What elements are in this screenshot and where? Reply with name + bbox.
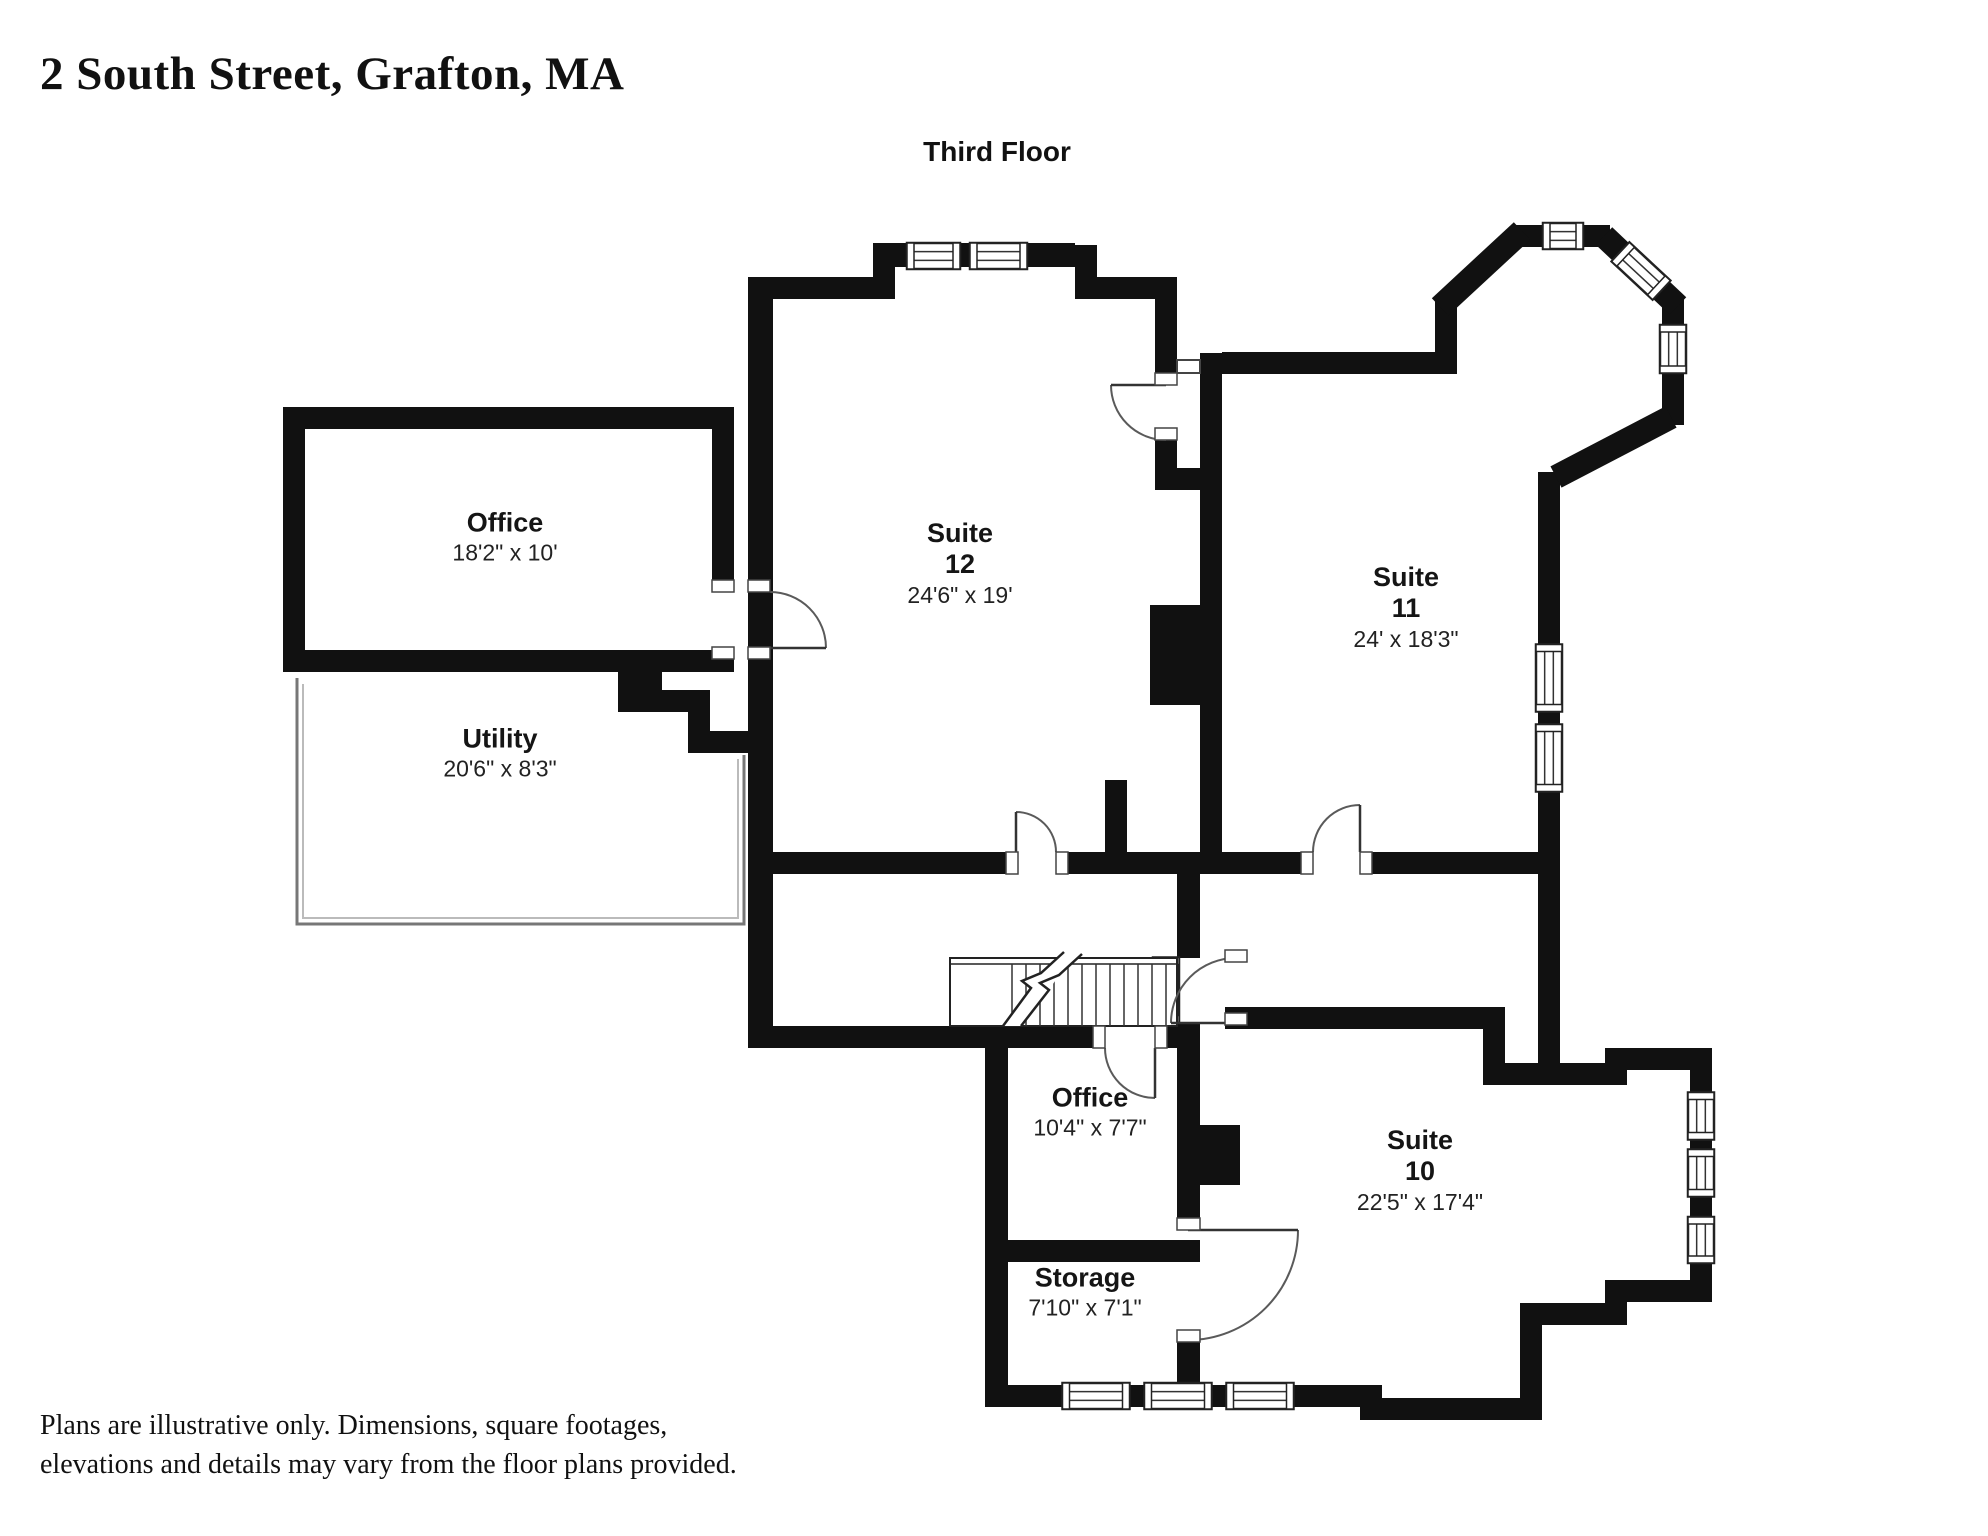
- window-icon: [1688, 1150, 1714, 1197]
- door-icon: [1313, 805, 1360, 852]
- room-number: 11: [1353, 593, 1458, 624]
- disclaimer-line-1: Plans are illustrative only. Dimensions,…: [40, 1406, 737, 1445]
- cased-opening: [1177, 360, 1200, 373]
- room-name: Office: [1033, 1083, 1146, 1114]
- room-dims: 20'6" x 8'3": [443, 756, 556, 783]
- door-jamb: [1056, 852, 1068, 874]
- door-jamb: [1225, 1013, 1247, 1025]
- door-jamb: [1093, 1026, 1105, 1048]
- window-icon: [1536, 725, 1562, 792]
- floor-plan-drawing: [0, 0, 1988, 1536]
- window-icon: [970, 243, 1027, 269]
- room-name: Suite: [907, 518, 1012, 549]
- door-icon: [1016, 812, 1056, 852]
- room-dims: 24'6" x 19': [907, 581, 1012, 608]
- window-icon: [1543, 223, 1583, 249]
- utility-outline: [297, 678, 744, 924]
- door-jamb: [1006, 852, 1018, 874]
- room-name: Suite: [1353, 562, 1458, 593]
- door-jamb: [1155, 1026, 1167, 1048]
- window-icon: [1612, 242, 1671, 299]
- door-jamb: [1360, 852, 1372, 874]
- room-name: Storage: [1028, 1263, 1141, 1294]
- room-label-suite-12: Suite 12 24'6" x 19': [907, 518, 1012, 608]
- room-label-utility: Utility 20'6" x 8'3": [443, 724, 556, 783]
- floor-plan-page: 2 South Street, Grafton, MA Third Floor …: [0, 0, 1988, 1536]
- window-icon: [1688, 1093, 1714, 1140]
- door-jamb: [1177, 1330, 1200, 1342]
- window-icon: [1145, 1383, 1212, 1409]
- room-label-suite-10: Suite 10 22'5" x 17'4": [1357, 1125, 1483, 1215]
- room-name: Suite: [1357, 1125, 1483, 1156]
- room-label-office-small: Office 10'4" x 7'7": [1033, 1083, 1146, 1142]
- room-number: 12: [907, 549, 1012, 580]
- room-dims: 7'10" x 7'1": [1028, 1295, 1141, 1322]
- door-jamb: [1155, 428, 1177, 440]
- disclaimer: Plans are illustrative only. Dimensions,…: [40, 1406, 737, 1484]
- room-dims: 24' x 18'3": [1353, 625, 1458, 652]
- door-icon: [770, 592, 826, 648]
- room-label-office-main: Office 18'2" x 10': [452, 508, 557, 567]
- door-jamb: [1225, 950, 1247, 962]
- door-jamb: [712, 580, 734, 592]
- room-dims: 10'4" x 7'7": [1033, 1115, 1146, 1142]
- walls-layer: [283, 225, 1712, 1420]
- window-icon: [1688, 1217, 1714, 1263]
- window-icon: [1227, 1383, 1294, 1409]
- door-jamb: [712, 647, 734, 659]
- room-dims: 18'2" x 10': [452, 540, 557, 567]
- windows-layer: [907, 223, 1714, 1409]
- room-name: Utility: [443, 724, 556, 755]
- window-icon: [1063, 1383, 1130, 1409]
- door-jamb: [1301, 852, 1313, 874]
- room-number: 10: [1357, 1156, 1483, 1187]
- door-jamb: [1177, 1218, 1200, 1230]
- disclaimer-line-2: elevations and details may vary from the…: [40, 1445, 737, 1484]
- room-label-suite-11: Suite 11 24' x 18'3": [1353, 562, 1458, 652]
- room-dims: 22'5" x 17'4": [1357, 1188, 1483, 1215]
- window-icon: [1536, 645, 1562, 712]
- room-name: Office: [452, 508, 557, 539]
- door-jamb: [1155, 373, 1177, 385]
- staircase: [950, 952, 1177, 1026]
- door-jamb: [748, 580, 770, 592]
- window-icon: [907, 243, 960, 269]
- window-icon: [1660, 325, 1686, 373]
- door-jamb: [748, 647, 770, 659]
- door-icon: [1188, 1230, 1298, 1340]
- room-label-storage: Storage 7'10" x 7'1": [1028, 1263, 1141, 1322]
